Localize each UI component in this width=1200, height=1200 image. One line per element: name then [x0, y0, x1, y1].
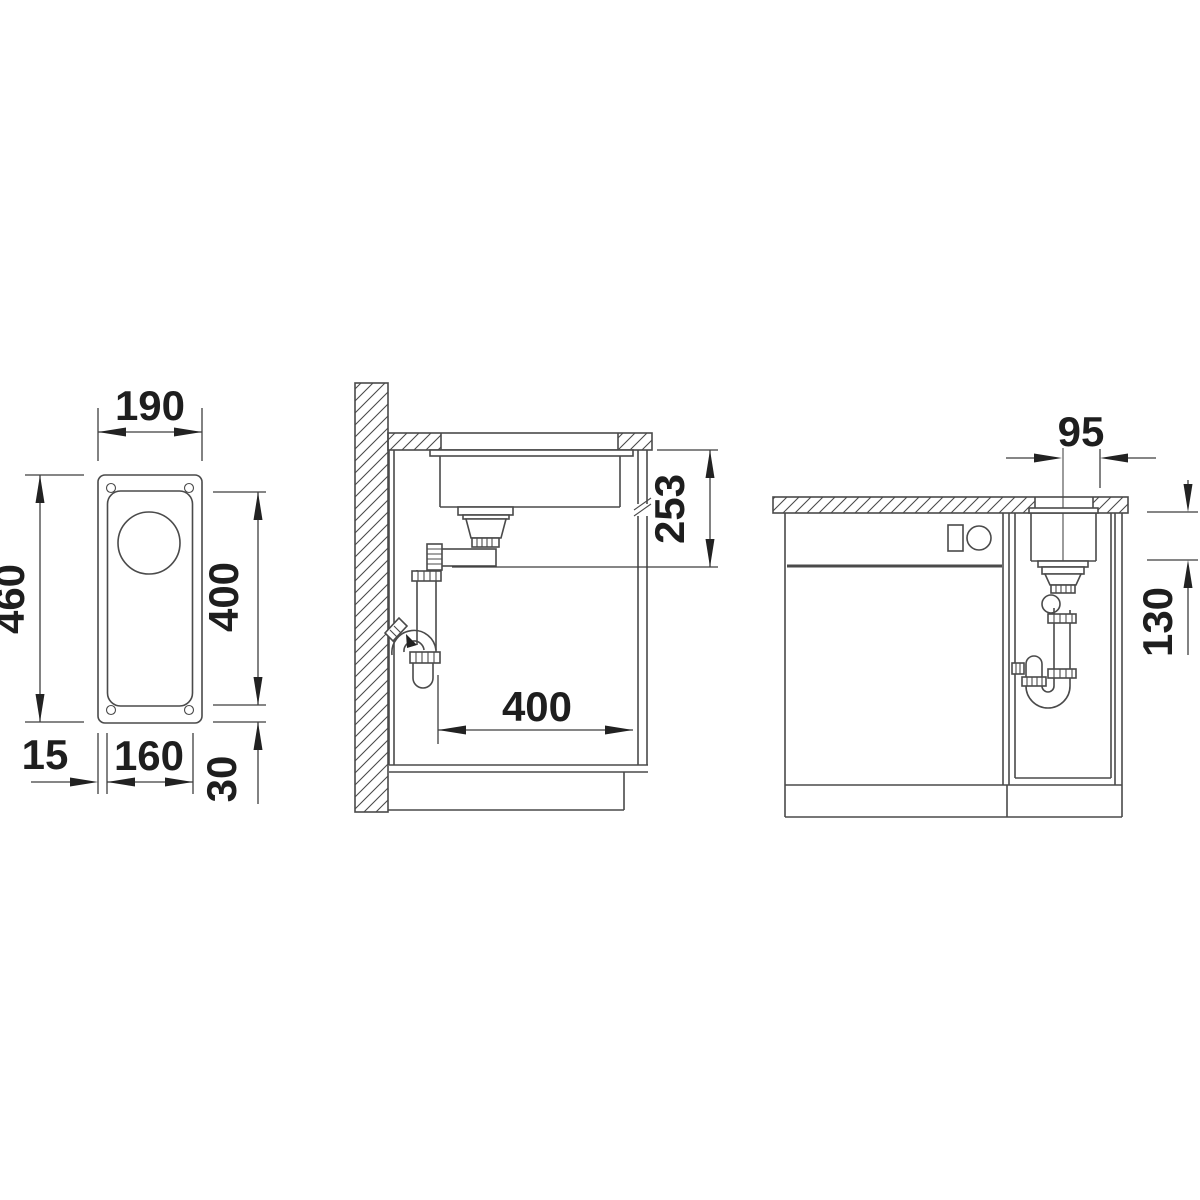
dim-center-to-edge: 95: [1006, 408, 1156, 488]
plinth: [785, 785, 1122, 817]
dim-overall-length: 460: [0, 475, 84, 722]
dim-rim-left: 15: [22, 731, 107, 794]
cabinet-front: [785, 513, 1122, 817]
siphon-side: [385, 544, 496, 688]
dim-bowl-width: 160: [107, 732, 193, 794]
strainer-assembly: [458, 507, 513, 547]
dim-label-15: 15: [22, 731, 69, 778]
dim-label-400-top: 400: [200, 562, 247, 632]
dim-overall-width: 190: [98, 382, 202, 461]
siphon-front: [1012, 595, 1076, 708]
side-section-view: 253 400: [355, 383, 718, 812]
dim-label-190: 190: [115, 382, 185, 429]
sink-bowl-section: [430, 450, 633, 507]
dim-cabinet-width: 400: [438, 675, 633, 744]
wall-section: [355, 383, 388, 812]
dim-bowl-length: 400: [200, 492, 266, 705]
dim-label-160: 160: [114, 732, 184, 779]
dim-label-95: 95: [1058, 408, 1105, 455]
cabinet-section: [388, 450, 652, 810]
drawing-page: 190 460 400 30 15 160: [0, 0, 1200, 1200]
dim-label-400-side: 400: [502, 683, 572, 730]
top-view: 190 460 400 30 15 160: [0, 382, 266, 804]
dim-label-130: 130: [1134, 587, 1181, 657]
dim-bowl-depth: 130: [1134, 480, 1198, 657]
dim-rim-bottom: 30: [198, 722, 266, 804]
dim-label-460: 460: [0, 564, 33, 634]
worktop-section: [388, 433, 652, 450]
dim-label-30: 30: [198, 756, 245, 803]
door-badge-rect: [948, 525, 963, 551]
door-badge-circle: [967, 526, 991, 550]
strainer-front: [1038, 561, 1088, 593]
front-view: 95 130: [773, 408, 1198, 817]
dim-label-253: 253: [646, 474, 693, 544]
technical-drawing: 190 460 400 30 15 160: [0, 0, 1200, 1200]
sink-outline: [98, 475, 202, 723]
